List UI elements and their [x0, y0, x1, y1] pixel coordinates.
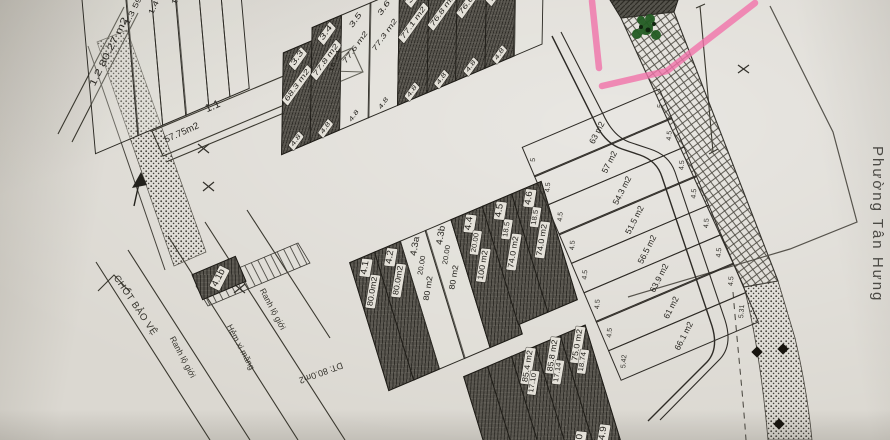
plot-number: 3.5 — [348, 11, 364, 31]
plot-number: 4.6 — [523, 189, 536, 208]
width-dim-right: 4.5 — [728, 276, 736, 286]
plot-depth-dim: 20.00 — [442, 244, 453, 264]
plot-number: 4.10 — [573, 432, 587, 440]
width-dim-right: 4.5 — [716, 247, 724, 257]
plot-area: 76.6 m2 — [457, 0, 488, 18]
width-dim-left: 5 — [530, 157, 537, 162]
plot-area: 51.5 m2 — [623, 204, 646, 236]
plot-number: 4.9 — [598, 424, 611, 440]
width-dim-left: 4.5 — [594, 299, 602, 309]
plot-area: 57 m2 — [599, 149, 619, 175]
plot-area: 56.5 m2 — [635, 233, 658, 265]
plot-number: 4.5 — [494, 201, 507, 220]
plot-area: 76.3 m2 — [486, 0, 517, 6]
plot-area: 63.9 m2 — [647, 262, 670, 294]
width-dim-right: 4.5 — [666, 131, 674, 141]
plot-depth-dim: 17.14 — [552, 360, 564, 384]
plot-area: 66.1 m2 — [672, 320, 695, 352]
plot-label: 1.280.27 m2 — [87, 16, 130, 88]
plot-number: 1.2 — [87, 67, 104, 88]
plot-area: 63 m2 — [587, 120, 607, 146]
plot-depth-dim: 20.00 — [416, 255, 427, 275]
plot-area: 80.0m2 — [391, 263, 406, 297]
width-dim-left: 5.42 — [620, 354, 628, 368]
width-dim-left: 4.5 — [545, 182, 553, 192]
plot-area: 77.6 m2 — [342, 29, 370, 66]
plot-area: 77.1 m2 — [398, 3, 429, 44]
width-dim-right: 5.31 — [738, 304, 746, 318]
land-plot: 3.5 77.6 m2 4.8 — [339, 2, 371, 131]
width-dim-right: 4.5 — [703, 218, 711, 228]
land-plot: 3.4 77.8 m2 16.24 4.8 — [310, 14, 342, 143]
ward-name: Phường Tân Hưng — [869, 146, 886, 302]
plot-number: 4.1b — [209, 265, 229, 290]
plot-label: 1.561.3 m2 — [170, 0, 203, 6]
plot-area: 54.3 m2 — [610, 175, 633, 207]
plot-area: 61 m2 — [661, 294, 681, 320]
plot-frontage-dim: 4.8 — [348, 109, 360, 125]
stippled-footpath — [744, 281, 812, 440]
plot-depth-dim: 18.74 — [576, 349, 588, 373]
width-dim-left: 4.5 — [582, 270, 590, 280]
plot-number: 4.3a — [409, 236, 423, 256]
site-plan-photo: 1.280.27 m2 1.359.4 m2 1.462.3 m2 1.561.… — [0, 0, 890, 440]
plot-depth-dim: 17.10 — [527, 370, 539, 394]
plot-number: 4.3b — [435, 225, 449, 245]
width-dim-left: 4.5 — [569, 241, 577, 251]
land-plot: 3.8 76.8 m2 4.8 — [426, 0, 458, 94]
plot-area: 80.0m2 — [365, 274, 380, 308]
width-dim-right: 5 — [657, 103, 664, 108]
plot-area: 80 m2 — [422, 275, 435, 300]
land-plot: 3.6 77.3 m2 4.8 — [368, 0, 400, 118]
land-plot: 3.9 76.6 m2 4.8 — [455, 0, 487, 81]
plot-area: 76.8 m2 — [427, 0, 458, 31]
plot-area: 80 m2 — [448, 264, 461, 289]
width-dim-right: 4.5 — [691, 189, 699, 199]
plot-number: 3.6 — [377, 0, 393, 18]
plot-area: 77.3 m2 — [371, 17, 399, 54]
land-plot: 3.7 77.1 m2 4.8 — [397, 0, 429, 106]
width-dim-left: 4.5 — [557, 211, 565, 221]
plot-frontage-dim: 4.8 — [377, 96, 389, 112]
width-dim-right: 4.5 — [679, 160, 687, 170]
width-dim-left: 4.5 — [606, 328, 614, 338]
